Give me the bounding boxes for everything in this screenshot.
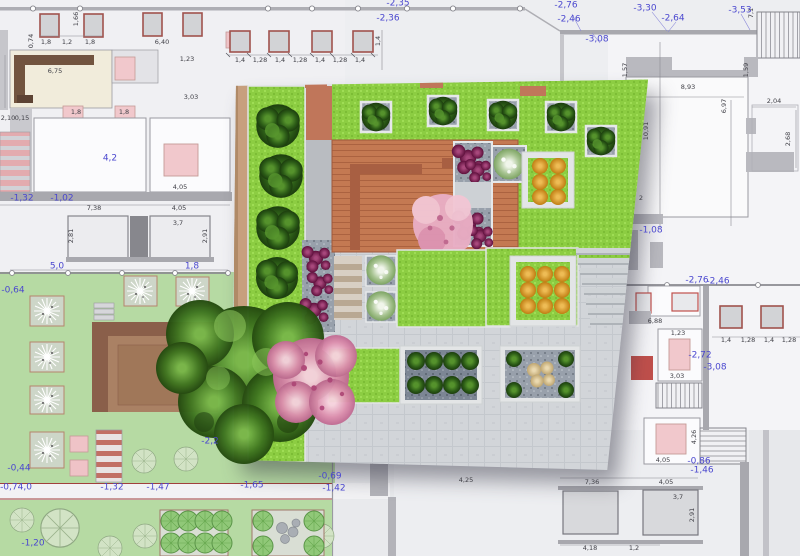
bench <box>350 174 360 250</box>
lower-garden <box>0 500 334 556</box>
brick-wall <box>306 86 332 140</box>
deck-steps <box>334 256 362 320</box>
orange-planter-b <box>510 256 576 326</box>
lower-rooms <box>66 216 214 262</box>
bench <box>350 164 422 174</box>
hedge-planter <box>400 346 482 404</box>
kitchen-room <box>10 50 112 108</box>
garden-render <box>228 78 648 470</box>
pink-flowering-tree <box>412 194 473 254</box>
bed-pink <box>164 144 198 176</box>
orange-planter-a <box>522 152 574 208</box>
garden-render-overlay <box>228 78 648 470</box>
staircase-mid <box>656 383 702 408</box>
plan-canvas: -2,76-2,46-3,08-3,30-2,64-3,53-2,35-2,36… <box>0 0 800 556</box>
rooms <box>34 118 230 192</box>
gravel-corner-planter <box>500 346 580 402</box>
red-stairs-2d <box>96 430 122 482</box>
staircase <box>700 428 746 464</box>
staircase-top-right <box>757 12 800 58</box>
deck-2d <box>92 322 218 412</box>
steps-2d <box>94 303 114 320</box>
lawn <box>328 348 400 403</box>
